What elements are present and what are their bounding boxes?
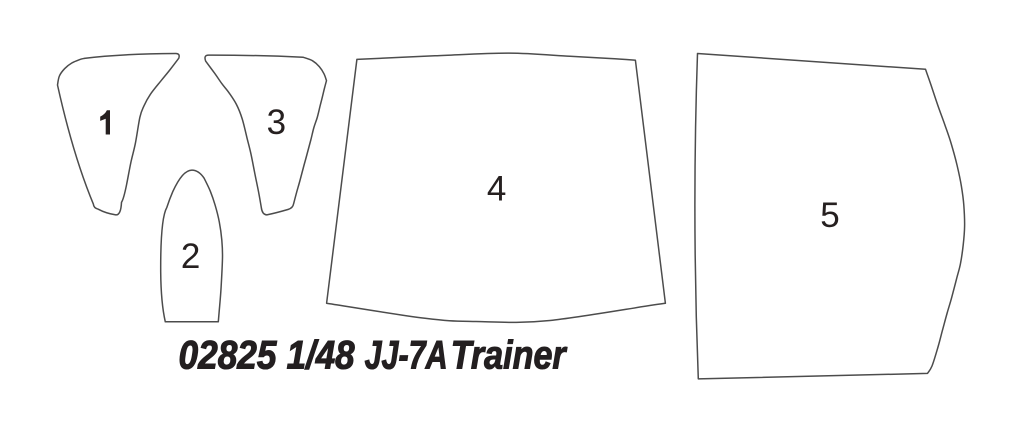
svg-text:1/48: 1/48	[287, 334, 356, 378]
svg-text:2: 2	[181, 237, 200, 276]
svg-text:4: 4	[487, 170, 506, 209]
svg-text:Trainer: Trainer	[451, 334, 568, 378]
svg-text:JJ-7A: JJ-7A	[365, 334, 448, 378]
svg-text:3: 3	[267, 103, 286, 142]
svg-text:5: 5	[820, 196, 839, 235]
svg-text:02825: 02825	[179, 334, 278, 378]
